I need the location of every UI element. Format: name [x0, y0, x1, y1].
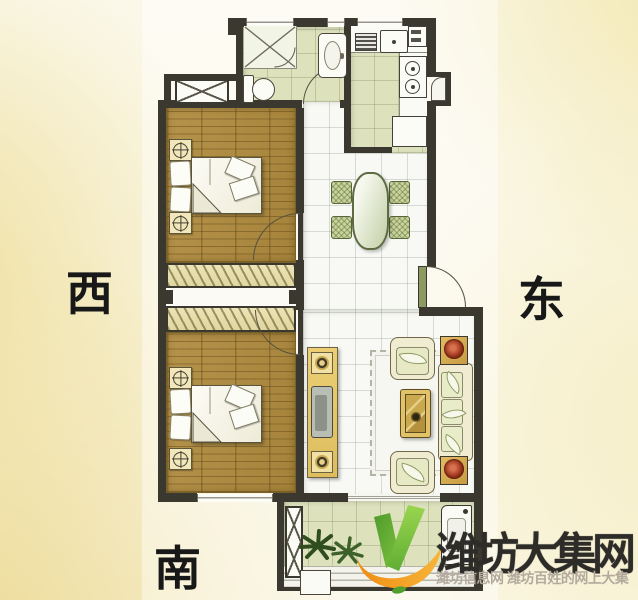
tv-console: [307, 347, 338, 478]
wall-top-2: [294, 18, 327, 27]
basin-faucet: [340, 53, 344, 59]
speaker-cone-icon: [315, 356, 329, 370]
dining-chair-nw: [331, 181, 352, 204]
small-window: [327, 18, 345, 27]
kitchen-sink: [380, 30, 408, 53]
tv-screen: [315, 395, 327, 431]
bedroom1-pillow-2: [169, 186, 191, 212]
compass-south-label: 南: [154, 530, 201, 599]
living-south-wall-left: [313, 493, 348, 502]
table-ornament: [411, 412, 421, 422]
armchair-bottom: [390, 451, 435, 494]
west-exterior-wall: [158, 100, 166, 502]
dining-chair-se: [389, 216, 410, 239]
shower-x-icon: [244, 26, 296, 68]
drain-grate: [355, 33, 377, 51]
hall-wall-lower: [296, 355, 304, 502]
washbasin: [318, 33, 347, 78]
speaker-cone-icon: [315, 455, 329, 469]
bedroom2-window: [197, 494, 273, 502]
dining-table: [352, 172, 389, 250]
dining-east-wall: [427, 106, 436, 267]
watermark-subtitle: 潍坊信息网 潍坊百姓的网上大集: [436, 568, 628, 588]
coffee-table: [400, 389, 431, 438]
cabinet-handle-2: [411, 38, 421, 42]
compass-east-label: 东: [518, 261, 565, 330]
plant-pot-top: [440, 336, 468, 365]
sink-drain-dot: [392, 40, 396, 44]
armchair-top: [390, 337, 435, 380]
flue-duct: [431, 77, 446, 101]
kitchen-south-wall: [344, 147, 392, 153]
coffee-table-glass: [405, 394, 426, 433]
cabinet-handle-1: [411, 30, 421, 34]
living-east-wall: [474, 316, 483, 495]
sofa: [438, 363, 473, 461]
plant-pot-bottom: [440, 456, 468, 485]
stove-burner-1: [405, 61, 420, 76]
bedroom2-pillow-2: [169, 414, 191, 440]
bedroom1-wardrobe: [166, 263, 296, 288]
basin-bowl: [324, 41, 341, 70]
speaker-top: [311, 352, 333, 374]
red-flower-icon: [444, 459, 464, 479]
shower-stall: [244, 26, 297, 69]
nightstand-lamp-icon: [173, 452, 188, 467]
bedroom2-pillow-1: [169, 388, 191, 414]
hall-wall-mid: [296, 260, 304, 310]
nightstand-lamp-icon: [173, 216, 188, 231]
compass-west-label: 西: [66, 255, 113, 324]
nightstand-lamp-icon: [173, 371, 188, 386]
dining-chair-sw: [331, 216, 352, 239]
balcony-west-wall: [277, 502, 284, 590]
kitchen-east-wall: [427, 26, 436, 72]
corner-cabinet: [408, 26, 427, 47]
weifang-daji-logo-icon: [344, 497, 448, 600]
bedroom1-pillow-1: [169, 160, 191, 186]
tv-set: [311, 386, 333, 438]
washer-knob-icon: [463, 509, 468, 514]
floor-plan-canvas: 西 东 南 潍坊大集网 潍坊信息网 潍坊百姓的网上大集: [0, 0, 638, 600]
bedroom2-nightstand-bottom: [169, 448, 192, 470]
red-flower-icon: [444, 339, 464, 359]
wardrobe-gap-wall: [166, 288, 296, 306]
stove-burner-2: [405, 79, 420, 94]
toilet-bowl: [252, 78, 275, 101]
kitchen-cabinet-low: [392, 116, 427, 147]
bedroom2-nightstand-top: [169, 367, 192, 389]
balcony-pillar-box: [300, 570, 331, 595]
hall-closet: [175, 79, 229, 104]
bathroom-west-wall: [236, 26, 243, 102]
speaker-bottom: [311, 451, 333, 473]
wardrobe-gap-cap-left: [166, 290, 173, 304]
stove: [399, 56, 427, 98]
wardrobe-gap-cap-right: [289, 290, 296, 304]
nightstand-lamp-icon: [173, 143, 188, 158]
entry-step-wall: [419, 307, 483, 316]
hall-wall-upper: [296, 108, 304, 213]
bedroom2-south-wall-right: [273, 493, 313, 502]
bedroom1-nightstand-bottom: [169, 212, 192, 234]
dining-chair-ne: [389, 181, 410, 204]
bedroom1-nightstand-top: [169, 139, 192, 161]
